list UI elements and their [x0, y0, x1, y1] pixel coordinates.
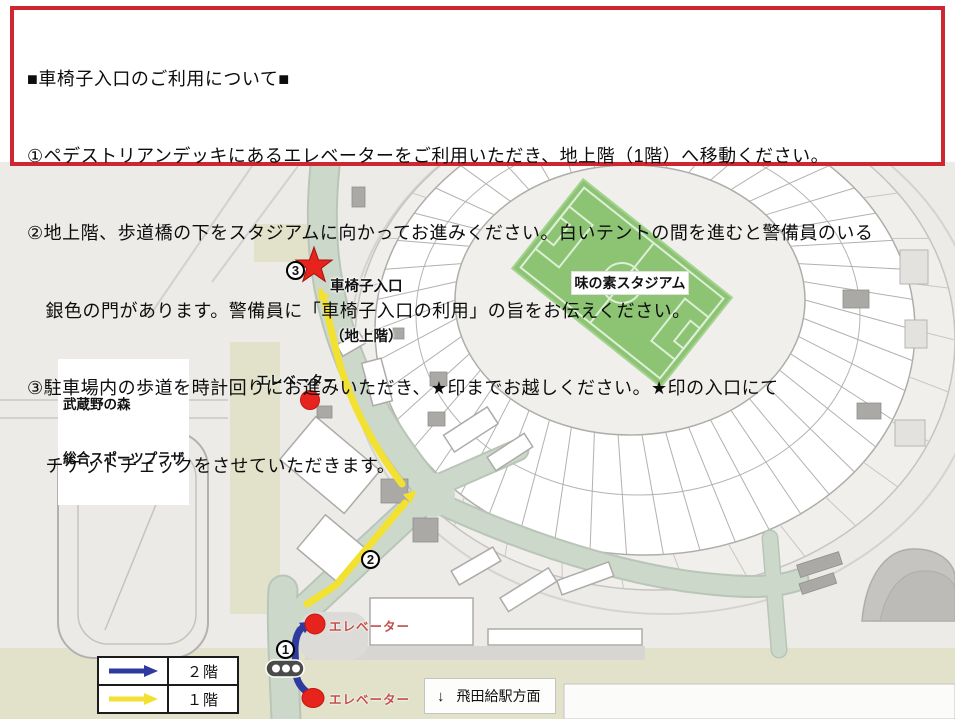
route-legend: ２階 １階: [97, 656, 239, 714]
station-direction-text: 飛田給駅方面: [457, 686, 541, 706]
step-marker-1: 1: [276, 640, 295, 659]
elevator-dot-station: [302, 689, 324, 708]
bottom-white-strip: [564, 684, 955, 719]
legend-yellow-arrow-icon: [99, 686, 169, 712]
elevator-label-station: エレベーター: [329, 689, 410, 708]
notice-line: 銀色の門があります。警備員に「車椅子入口の利用」の旨をお伝えください。: [27, 299, 941, 325]
notice-title: ■車椅子入口のご利用について■: [27, 67, 941, 93]
step-marker-2: 2: [361, 550, 380, 569]
legend-row-2f: ２階: [99, 658, 237, 684]
station-direction-box: ↓ 飛田給駅方面: [424, 678, 556, 714]
traffic-light-icon: [266, 660, 304, 677]
wheelchair-access-notice-page: 車椅子入口 （地上階） 味の素スタジアム 武蔵野の森 総合スポーツプラザ エレベ…: [0, 0, 955, 719]
notice-line: チケットチェックをさせていただきます。: [27, 454, 941, 480]
elevator-dot-mid: [305, 614, 325, 634]
notice-line: ②地上階、歩道橋の下をスタジアムに向かってお進みください。白いテントの間を進むと…: [27, 221, 941, 247]
notice-line: ①ペデストリアンデッキにあるエレベーターをご利用いただき、地上階（1階）へ移動く…: [27, 144, 941, 170]
notice-line: ③駐車場内の歩道を時計回りにお進みいただき、★印までお越しください。★印の入口に…: [27, 376, 941, 402]
notice-box: ■車椅子入口のご利用について■ ①ペデストリアンデッキにあるエレベーターをご利用…: [10, 6, 945, 166]
legend-label-1f: １階: [169, 686, 237, 712]
down-arrow-icon: ↓: [437, 688, 445, 705]
legend-label-2f: ２階: [169, 658, 237, 684]
legend-row-1f: １階: [99, 684, 237, 712]
elevator-label-mid: エレベーター: [329, 616, 410, 635]
legend-blue-arrow-icon: [99, 658, 169, 684]
